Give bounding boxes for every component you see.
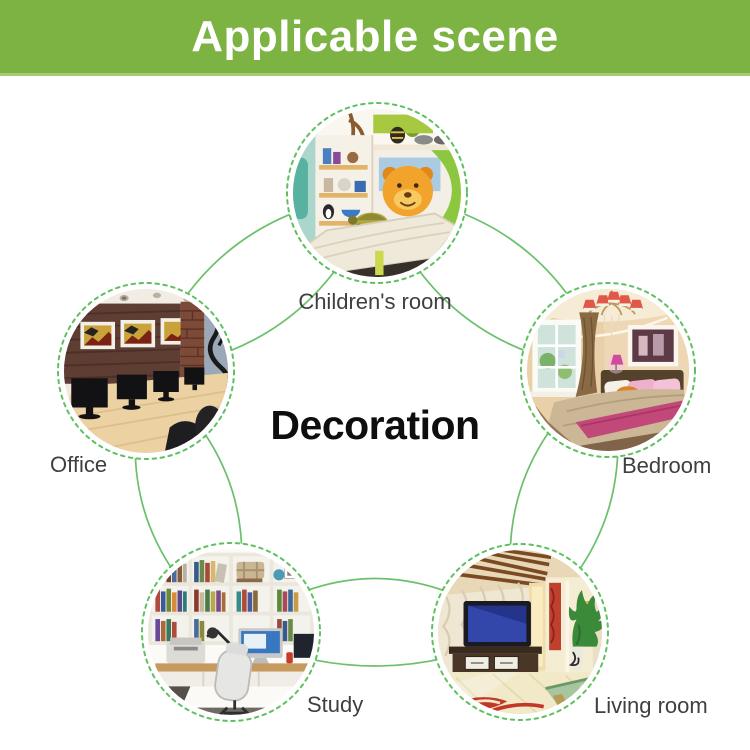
center-title: Decoration bbox=[270, 402, 479, 449]
study-label: Study bbox=[307, 692, 363, 718]
bedroom-label: Bedroom bbox=[622, 453, 711, 479]
living-room-node bbox=[432, 544, 608, 720]
office-label: Office bbox=[50, 452, 107, 478]
header-banner: Applicable scene bbox=[0, 0, 750, 76]
study-node bbox=[142, 543, 320, 721]
banner-title: Applicable scene bbox=[191, 12, 558, 62]
children-room-node bbox=[287, 103, 467, 288]
office-node bbox=[58, 283, 234, 459]
bedroom-node bbox=[521, 283, 695, 457]
children-room-photo bbox=[293, 109, 461, 288]
children-room-label: Children's room bbox=[298, 289, 451, 315]
living-room-label: Living room bbox=[594, 693, 708, 719]
diagram-canvas bbox=[0, 0, 750, 750]
applicable-scene-diagram: Children's room Office Bedroom Study Liv… bbox=[0, 0, 750, 750]
